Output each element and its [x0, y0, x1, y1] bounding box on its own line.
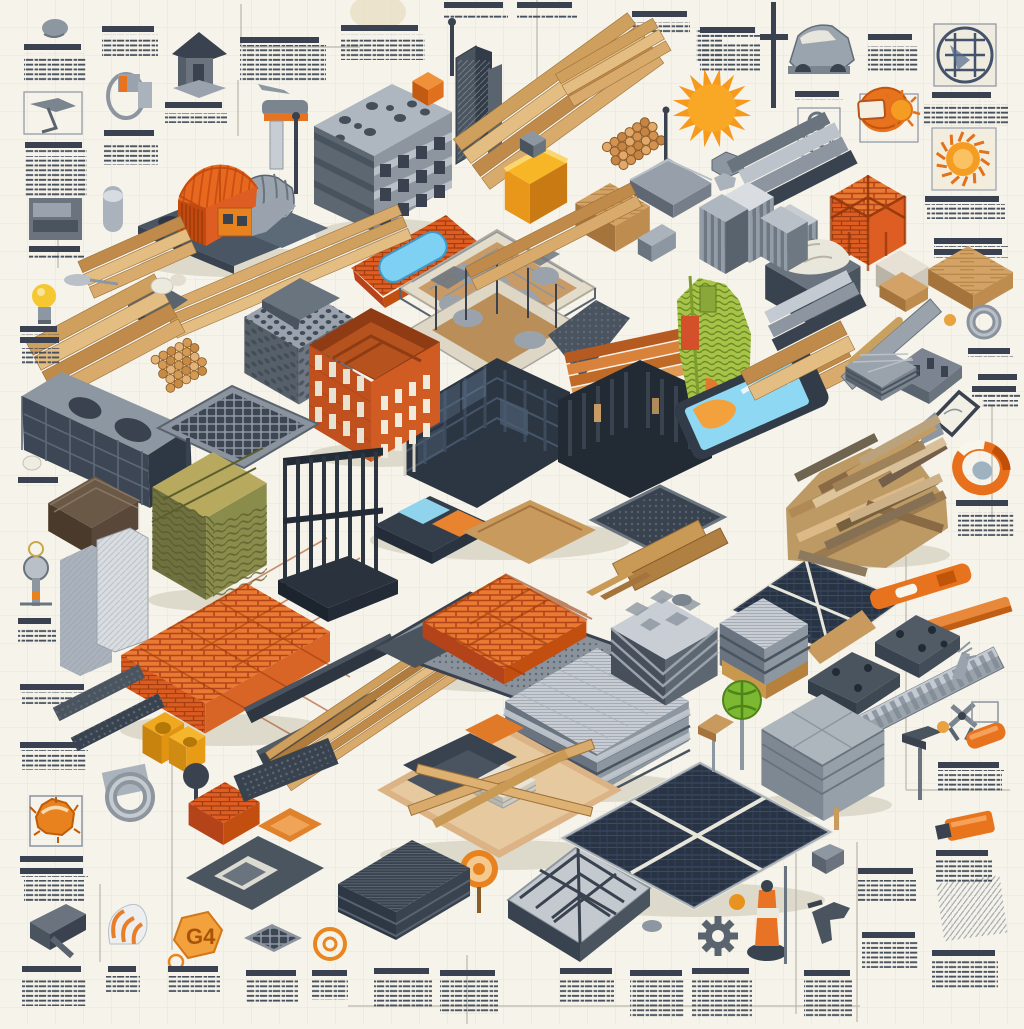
svg-text:G4: G4 — [186, 924, 216, 949]
